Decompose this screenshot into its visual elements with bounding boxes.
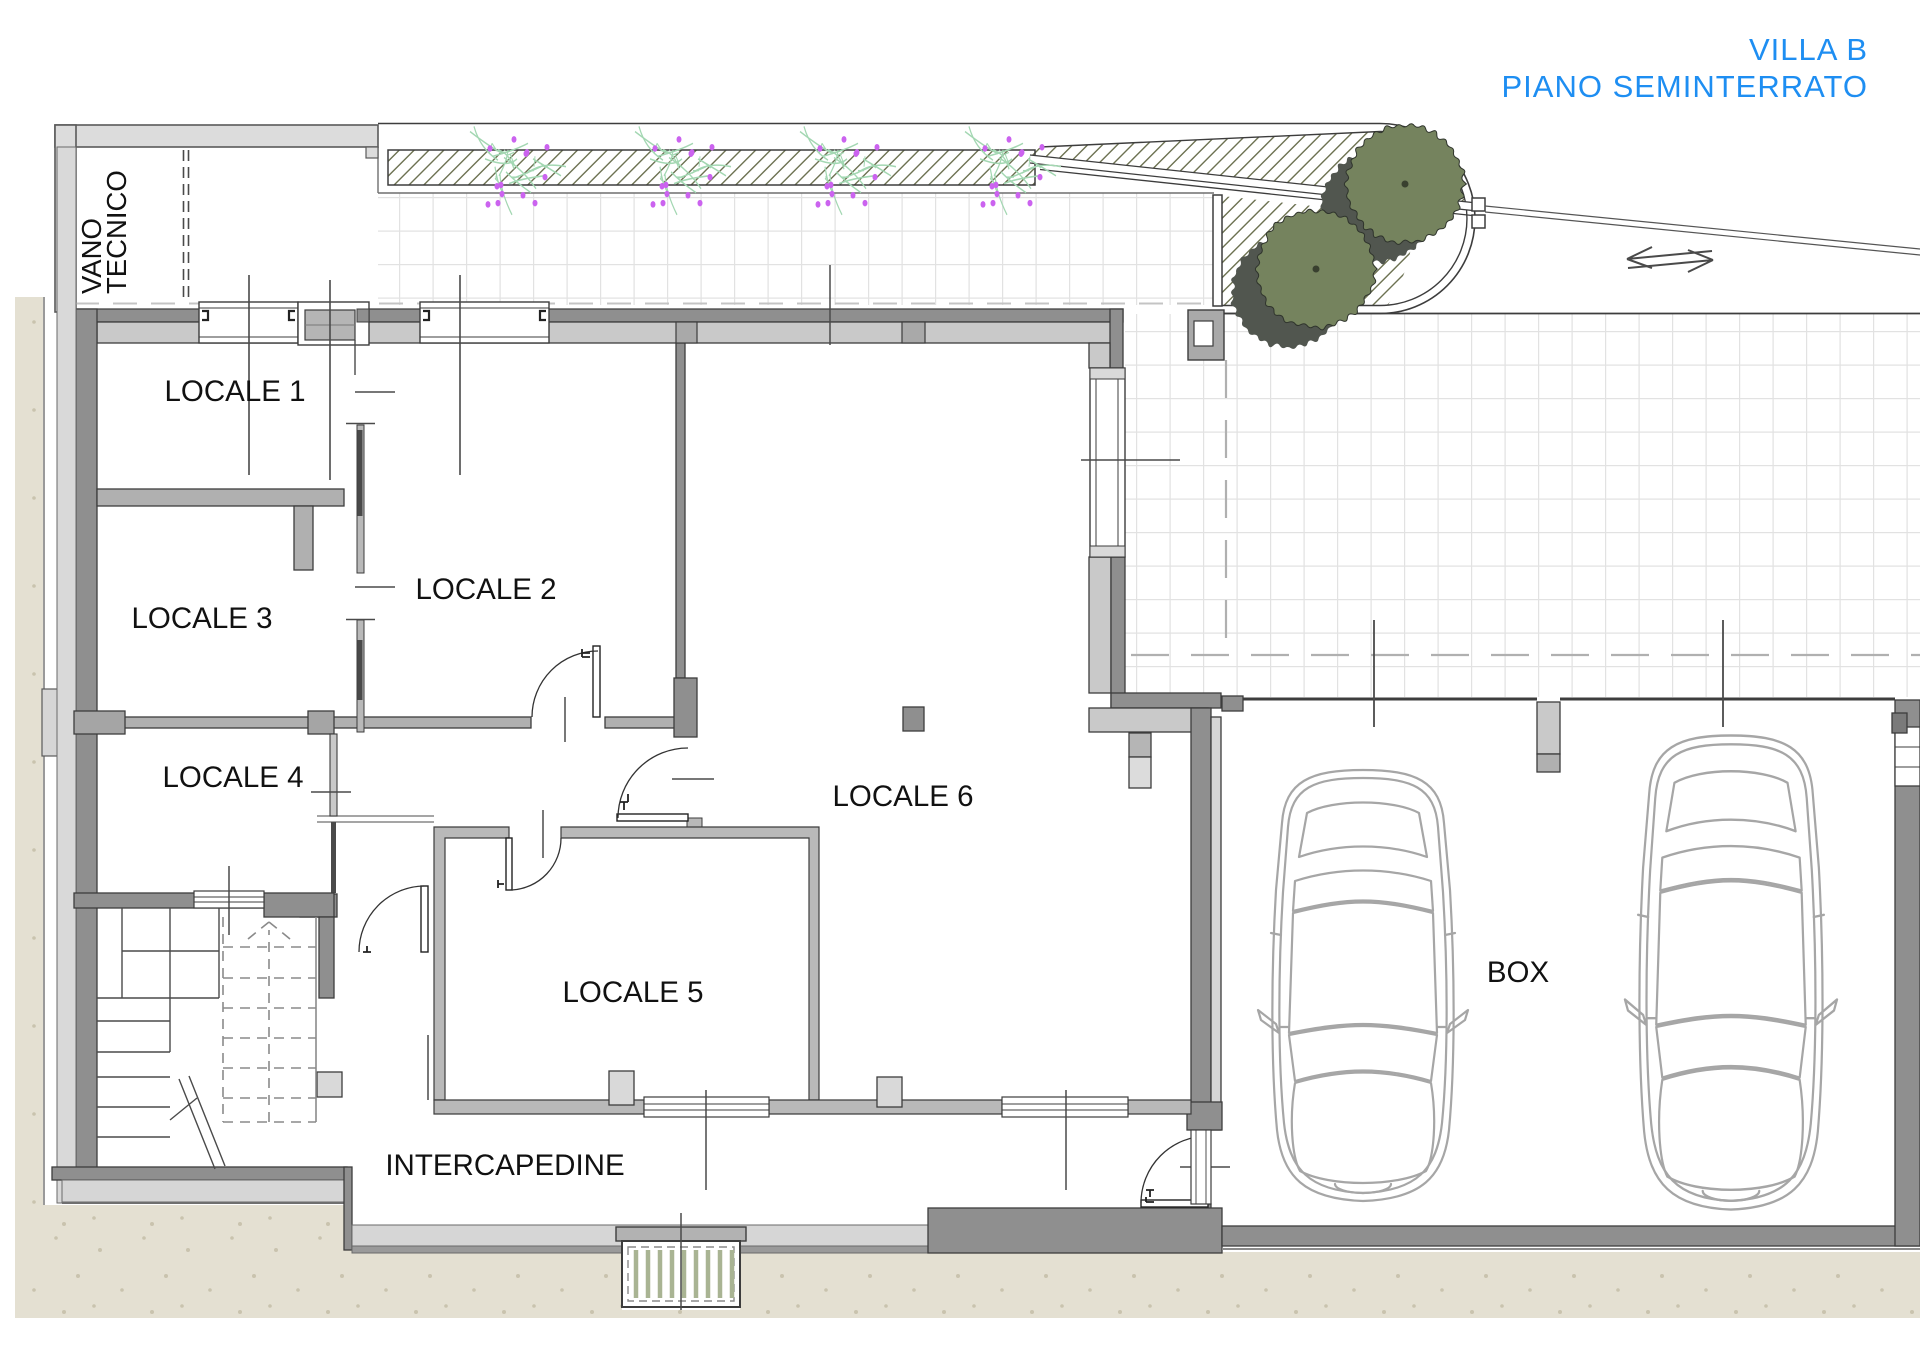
svg-text:LOCALE 4: LOCALE 4 xyxy=(162,761,303,794)
svg-text:LOCALE 5: LOCALE 5 xyxy=(562,976,703,1009)
svg-text:LOCALE 1: LOCALE 1 xyxy=(164,375,305,408)
svg-text:BOX: BOX xyxy=(1487,956,1550,989)
svg-text:LOCALE 6: LOCALE 6 xyxy=(832,780,973,813)
svg-text:LOCALE 3: LOCALE 3 xyxy=(131,602,272,635)
svg-text:PIANO SEMINTERRATO: PIANO SEMINTERRATO xyxy=(1501,69,1868,104)
svg-text:TECNICO: TECNICO xyxy=(101,170,132,294)
svg-text:INTERCAPEDINE: INTERCAPEDINE xyxy=(385,1149,624,1182)
svg-text:LOCALE 2: LOCALE 2 xyxy=(415,573,556,606)
svg-text:VILLA B: VILLA B xyxy=(1749,32,1868,67)
